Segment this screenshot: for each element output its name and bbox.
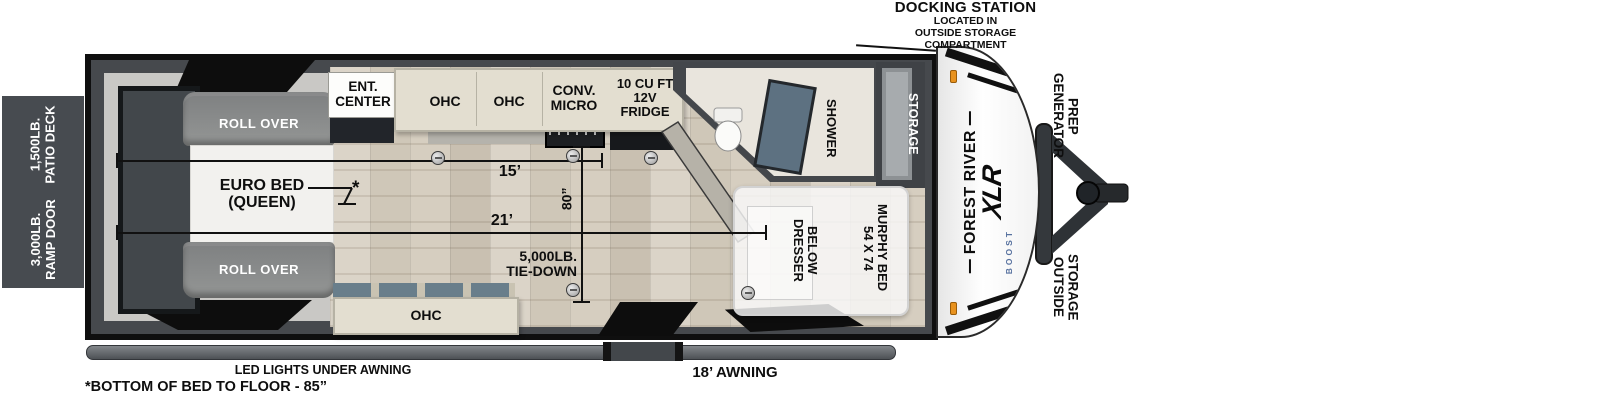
front-cap: FOREST RIVER XLR BOOST: [936, 46, 1040, 338]
roll-over-top-label: ROLL OVER: [219, 117, 299, 131]
dimension-label-80in: 80”: [559, 188, 575, 211]
dresser-below-label: DRESSER BELOW: [791, 219, 819, 282]
dimension-tick-15ft-left: [116, 153, 118, 168]
dimension-line-80in: [581, 147, 583, 303]
cabinet-divider-1: [476, 72, 477, 126]
dimension-tick-15ft-right: [601, 153, 603, 168]
brand-model: XLR: [980, 103, 1004, 280]
toilet-icon: [715, 121, 741, 151]
ent-center: ENT. CENTER: [328, 72, 398, 118]
led-lights-label: LED LIGHTS UNDER AWNING: [223, 364, 423, 378]
tie-down-anchor-icon: [566, 149, 580, 163]
ramp-door-label: 3,000LB. RAMP DOOR: [28, 200, 57, 281]
docking-station-annotation: DOCKING STATION LOCATED IN OUTSIDE STORA…: [858, 0, 1073, 51]
tie-down-anchor-icon: [566, 283, 580, 297]
patio-deck-label: 1,500LB. PATIO DECK: [28, 106, 57, 184]
hitch-jack-wheel: [1077, 182, 1099, 204]
bed-height-note: *BOTTOM OF BED TO FLOOR - 85”: [85, 380, 327, 396]
brand-logo: FOREST RIVER XLR BOOST: [938, 48, 1038, 336]
toilet-tank: [714, 108, 742, 122]
outside-storage-label-wrap: OUTSIDE STORAGE: [1042, 228, 1088, 346]
roll-over-sofa-bottom: ROLL OVER: [183, 242, 335, 298]
conv-micro-label: CONV. MICRO: [536, 83, 612, 113]
bed-note-callout: [300, 178, 375, 212]
generator-prep-label: GENERATOR PREP: [1050, 73, 1079, 158]
awning-rail-bracket: [603, 342, 683, 361]
murphy-bed-label: 54 X 74 MURPHY BED: [861, 204, 889, 291]
awning-rail: [86, 345, 896, 360]
bed-note-asterisk: *: [352, 179, 359, 200]
dimension-label-21ft: 21’: [480, 212, 524, 229]
roll-over-bottom-label: ROLL OVER: [219, 263, 299, 277]
dimension-label-15ft: 15’: [488, 163, 532, 180]
tie-down-anchor-icon: [644, 151, 658, 165]
kitchen-overhead-cabinets: OHC OHC CONV. MICRO 10 CU FT 12V FRIDGE: [394, 68, 684, 132]
tie-down-anchor-icon: [741, 286, 755, 300]
ramp-door-label-wrap: 3,000LB. RAMP DOOR: [2, 192, 84, 288]
roll-over-sofa-top: ROLL OVER: [183, 92, 335, 146]
patio-deck-label-wrap: 1,500LB. PATIO DECK: [2, 98, 84, 192]
storage-label-wrap: STORAGE: [898, 70, 926, 178]
dimension-line-15ft: [117, 160, 603, 162]
dresser-label-wrap: DRESSER BELOW: [782, 198, 828, 302]
murphy-bed-label-wrap: 54 X 74 MURPHY BED: [852, 192, 898, 304]
generator-prep-label-wrap: GENERATOR PREP: [1042, 56, 1088, 176]
dimension-tick-80in-top: [573, 146, 590, 148]
tie-down-anchor-icon: [431, 151, 445, 165]
bottom-overhead-cabinet: OHC: [333, 297, 519, 335]
floorplan-canvas: DOCKING STATION LOCATED IN OUTSIDE STORA…: [0, 0, 1600, 401]
euro-bed-label: EURO BED (QUEEN): [220, 177, 304, 212]
dimension-tick-80in-bottom: [573, 301, 590, 303]
docking-station-title: DOCKING STATION: [858, 0, 1073, 16]
ent-center-label: ENT. CENTER: [335, 80, 391, 109]
ohc-bottom-label: OHC: [410, 308, 441, 323]
dimension-line-21ft: [117, 232, 767, 234]
shower-label-wrap: SHOWER: [818, 84, 844, 172]
awning-length-label: 18’ AWNING: [660, 365, 810, 381]
ohc-right-label: OHC: [484, 94, 534, 109]
ent-center-media-console: [330, 114, 394, 143]
bottom-cabinet-counter: [333, 283, 515, 297]
dimension-tick-21ft-right: [765, 225, 767, 240]
storage-label: STORAGE: [905, 93, 919, 155]
dimension-tick-21ft-left: [116, 225, 118, 240]
ohc-left-label: OHC: [420, 94, 470, 109]
tie-down-label: 5,000LB. TIE-DOWN: [465, 249, 577, 279]
dimension-label-80in-wrap: 80”: [552, 176, 582, 222]
shower-label: SHOWER: [824, 99, 838, 158]
brand-logo-text: FOREST RIVER XLR BOOST: [962, 106, 1014, 278]
outside-storage-label: OUTSIDE STORAGE: [1050, 254, 1079, 321]
